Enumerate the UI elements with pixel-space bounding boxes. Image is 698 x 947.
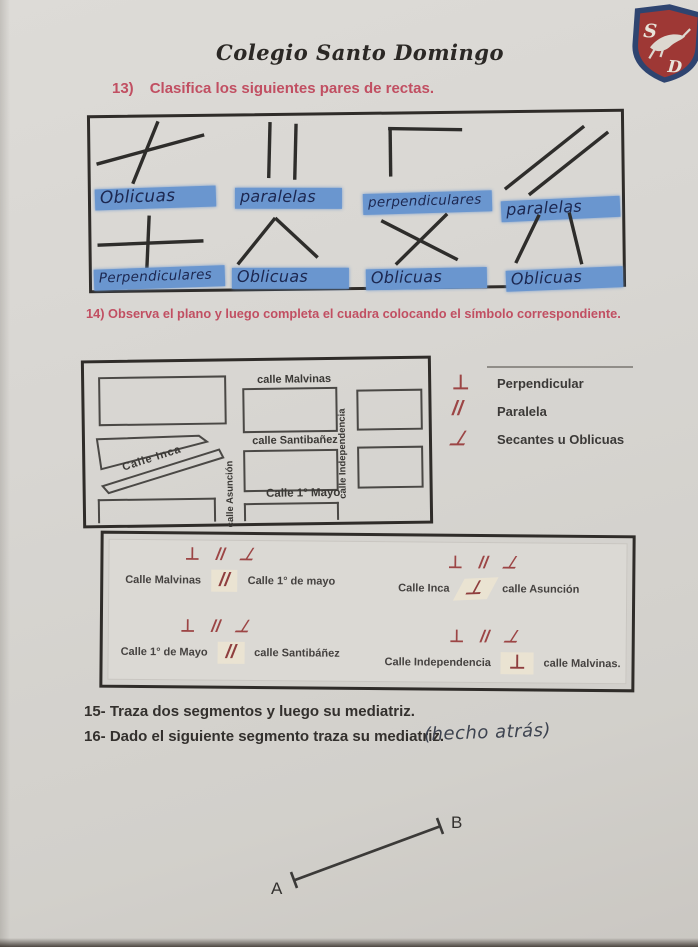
pair-cell: paralelas bbox=[226, 117, 355, 190]
figure-diagonal-parallel-lines bbox=[496, 114, 621, 200]
handwritten-symbol-answer: // bbox=[217, 642, 244, 664]
parallel-symbol-icon: // bbox=[452, 398, 463, 421]
q14-heading: 14) Observa el plano y luego completa el… bbox=[86, 306, 666, 321]
figure-x-crossing-lines bbox=[363, 209, 488, 267]
street-name: Calle 1° de mayo bbox=[248, 575, 336, 588]
pair-cell: Oblicuas bbox=[363, 209, 492, 272]
figure-right-angle-corner bbox=[362, 115, 487, 187]
oblique-symbol-icon: ⊥ bbox=[235, 545, 262, 565]
city-block-partial bbox=[244, 502, 339, 521]
figure-slanted-and-vertical-lines bbox=[497, 208, 622, 268]
point-a-label: A bbox=[271, 879, 283, 898]
symbol-options: ⊥ // ⊥ bbox=[125, 544, 315, 566]
school-name: Colegio Santo Domingo bbox=[60, 40, 660, 65]
symbol-options: ⊥ // ⊥ bbox=[398, 552, 568, 573]
q15-text: 15- Traza dos segmentos y luego su media… bbox=[84, 703, 415, 720]
q16-text: 16- Dado el siguiente segmento traza su … bbox=[84, 728, 444, 745]
oblique-symbol-icon: ⊥ bbox=[498, 553, 525, 573]
photo-left-shadow bbox=[0, 0, 10, 947]
answer-group: ⊥ // ⊥ Calle Independencia ⊥ calle Malvi… bbox=[384, 626, 632, 675]
pair-cell: paralelas bbox=[496, 114, 625, 205]
city-block bbox=[357, 446, 424, 489]
pair-cell: Oblicuas bbox=[92, 119, 221, 192]
worksheet-photo: { "header": { "school_name": "Colegio Sa… bbox=[0, 0, 698, 947]
oblique-symbol-icon: ⊥ bbox=[499, 627, 526, 647]
svg-text:D: D bbox=[666, 56, 683, 77]
parallel-symbol-icon: // bbox=[216, 545, 226, 565]
oblique-symbol-icon: ⊥ bbox=[230, 617, 257, 637]
handwritten-symbol-answer: ⊥ bbox=[501, 652, 534, 674]
city-block bbox=[242, 387, 338, 433]
perpendicular-symbol-icon: ⊥ bbox=[452, 370, 469, 395]
segment-ab-figure: A B bbox=[255, 798, 485, 910]
figure-plus-perpendicular-lines bbox=[93, 213, 218, 271]
parallel-symbol-icon: // bbox=[480, 627, 490, 647]
q13-number: 13) bbox=[112, 80, 134, 97]
street-name: Calle 1° de Mayo bbox=[121, 646, 208, 659]
city-block bbox=[243, 449, 339, 492]
inca-street-blocks bbox=[93, 431, 230, 497]
street-name: Calle Inca bbox=[398, 582, 449, 594]
street-name: calle Santibáñez bbox=[254, 647, 340, 660]
handwritten-symbol-answer: ⊥ bbox=[453, 577, 498, 600]
street-answers-box: ⊥ // ⊥ Calle Malvinas // Calle 1° de may… bbox=[99, 531, 635, 693]
symbol-options: ⊥ // ⊥ bbox=[121, 616, 311, 638]
handwritten-answer: Oblicuas bbox=[237, 267, 308, 286]
handwritten-symbol-answer: // bbox=[211, 570, 238, 592]
handwritten-answer: Perpendiculares bbox=[99, 266, 213, 286]
figure-oblique-crossing-lines bbox=[92, 119, 217, 187]
perpendicular-symbol-icon: ⊥ bbox=[448, 553, 463, 573]
city-block bbox=[356, 389, 423, 431]
street-name: calle Asunción bbox=[502, 583, 579, 596]
parallel-symbol-icon: // bbox=[211, 617, 221, 637]
handwritten-answer: perpendiculares bbox=[368, 191, 482, 210]
answer-strip: Oblicuas bbox=[232, 268, 349, 289]
q13-title-text: Clasifica los siguientes pares de rectas… bbox=[150, 80, 434, 97]
photo-bottom-shadow bbox=[0, 938, 698, 947]
point-b-label: B bbox=[451, 813, 462, 832]
pair-cell: perpendiculares bbox=[362, 115, 491, 192]
handwritten-answer: Oblicuas bbox=[511, 267, 583, 289]
answer-strip: Perpendiculares bbox=[94, 265, 226, 291]
legend-divider bbox=[487, 366, 633, 368]
street-name: Calle Independencia bbox=[385, 656, 491, 669]
parallel-symbol-icon: // bbox=[479, 553, 489, 573]
answer-group: ⊥ // ⊥ Calle 1° de Mayo // calle Santibá… bbox=[121, 616, 361, 665]
handwritten-answer: paralelas bbox=[240, 187, 316, 206]
legend-label-parallel: Paralela bbox=[497, 404, 547, 419]
street-pair: Calle Inca ⊥ calle Asunción bbox=[398, 577, 633, 601]
figure-vertical-parallel-lines bbox=[226, 117, 351, 185]
q13-heading: 13)Clasifica los siguientes pares de rec… bbox=[112, 80, 434, 97]
symbol-options: ⊥ // ⊥ bbox=[385, 626, 585, 648]
perpendicular-symbol-icon: ⊥ bbox=[185, 544, 200, 564]
legend-label-oblique: Secantes u Oblicuas bbox=[497, 432, 624, 447]
answer-strip: Oblicuas bbox=[366, 267, 487, 290]
street-label-mayo: Calle 1° Mayo bbox=[246, 487, 361, 501]
street-label-santibanez: calle Santibañez bbox=[235, 434, 355, 448]
answer-group: ⊥ // ⊥ Calle Inca ⊥ calle Asunción bbox=[398, 552, 633, 601]
street-label-asuncion: calle Asunción bbox=[224, 447, 236, 527]
school-crest-icon: S D bbox=[624, 0, 698, 87]
perpendicular-symbol-icon: ⊥ bbox=[449, 627, 464, 647]
street-name: calle Malvinas. bbox=[543, 658, 620, 671]
answer-group: ⊥ // ⊥ Calle Malvinas // Calle 1° de may… bbox=[125, 544, 355, 593]
legend-label-perpendicular: Perpendicular bbox=[497, 376, 584, 391]
pair-cell: Perpendiculares bbox=[93, 213, 222, 276]
street-name: Calle Malvinas bbox=[125, 574, 201, 587]
figure-caret-oblique-lines bbox=[227, 211, 352, 269]
answer-strip: Oblicuas bbox=[95, 185, 217, 210]
line-pairs-box: Oblicuas paralelas perpendiculares paral… bbox=[87, 109, 626, 294]
street-pair: Calle Independencia ⊥ calle Malvinas. bbox=[384, 651, 632, 675]
street-map-box: calle Malvinas calle Independencia calle… bbox=[81, 356, 433, 529]
oblique-symbol-icon: ⊥ bbox=[444, 426, 477, 451]
handwritten-answer: Oblicuas bbox=[371, 267, 442, 287]
handwritten-note: (hecho atrás) bbox=[424, 720, 552, 745]
answer-strip: paralelas bbox=[235, 188, 342, 209]
city-block bbox=[98, 375, 227, 426]
street-pair: Calle Malvinas // Calle 1° de mayo bbox=[125, 569, 355, 593]
svg-text:S: S bbox=[643, 20, 658, 43]
pair-cell: Oblicuas bbox=[227, 211, 356, 274]
city-block-partial bbox=[98, 498, 216, 524]
answer-strip: Oblicuas bbox=[506, 266, 624, 292]
handwritten-answer: Oblicuas bbox=[100, 185, 176, 207]
perpendicular-symbol-icon: ⊥ bbox=[180, 616, 195, 636]
pair-cell: Oblicuas bbox=[497, 208, 626, 273]
street-pair: Calle 1° de Mayo // calle Santibáñez bbox=[121, 641, 361, 665]
